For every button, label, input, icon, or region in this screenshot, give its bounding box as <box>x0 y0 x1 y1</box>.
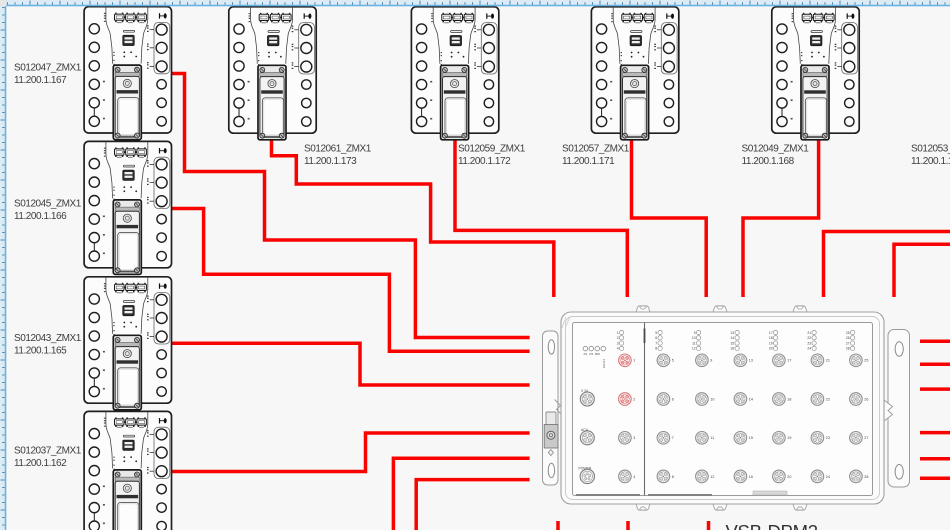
svg-text:2: 2 <box>617 336 619 340</box>
svg-text:S012045_ZMX1: S012045_ZMX1 <box>14 198 82 209</box>
svg-text:20: 20 <box>787 475 791 479</box>
svg-text:19: 19 <box>787 436 791 440</box>
svg-text:11: 11 <box>710 436 714 440</box>
svg-text:28: 28 <box>846 347 850 351</box>
svg-text:11: 11 <box>692 341 696 345</box>
svg-text:14: 14 <box>730 336 734 340</box>
svg-text:11.200.1.172: 11.200.1.172 <box>458 156 511 167</box>
svg-text:17: 17 <box>787 359 791 363</box>
svg-text:11.200.1.168: 11.200.1.168 <box>742 156 795 167</box>
svg-text:11.200.1.166: 11.200.1.166 <box>14 211 67 222</box>
svg-text:11.200.1.173: 11.200.1.173 <box>304 156 357 167</box>
svg-text:S012047_ZMX1: S012047_ZMX1 <box>14 62 82 73</box>
svg-text:17: 17 <box>769 331 773 335</box>
svg-text:24: 24 <box>807 347 811 351</box>
svg-text:P2: P2 <box>589 352 593 356</box>
svg-text:S012037_ZMX1: S012037_ZMX1 <box>14 446 82 457</box>
svg-text:11.200.1.167: 11.200.1.167 <box>14 75 67 86</box>
svg-text:27: 27 <box>846 341 850 345</box>
svg-text:10: 10 <box>710 397 714 401</box>
svg-text:FAULT: FAULT <box>602 359 606 368</box>
svg-text:28: 28 <box>864 475 868 479</box>
svg-text:6: 6 <box>672 397 674 401</box>
svg-text:S012059_ZMX1: S012059_ZMX1 <box>458 143 526 154</box>
svg-text:S012043_ZMX1: S012043_ZMX1 <box>14 333 82 344</box>
svg-text:16: 16 <box>749 475 753 479</box>
svg-text:25: 25 <box>864 359 868 363</box>
svg-text:5: 5 <box>672 359 674 363</box>
svg-text:11.200.1.169: 11.200.1.169 <box>911 156 950 167</box>
svg-text:18: 18 <box>769 336 773 340</box>
svg-text:27: 27 <box>864 436 868 440</box>
svg-text:S012057_ZMX1: S012057_ZMX1 <box>562 143 630 154</box>
svg-text:21: 21 <box>807 331 811 335</box>
svg-text:7: 7 <box>672 436 674 440</box>
svg-text:22: 22 <box>807 336 811 340</box>
svg-text:21: 21 <box>826 359 830 363</box>
svg-text:12: 12 <box>710 475 714 479</box>
svg-text:26: 26 <box>846 336 850 340</box>
svg-text:9: 9 <box>694 331 696 335</box>
svg-text:4: 4 <box>617 347 619 351</box>
svg-text:14: 14 <box>749 397 753 401</box>
svg-text:12: 12 <box>692 347 696 351</box>
svg-text:P1: P1 <box>584 352 588 356</box>
svg-text:16: 16 <box>730 347 734 351</box>
svg-text:13: 13 <box>730 331 734 335</box>
svg-text:RM: RM <box>595 352 600 356</box>
svg-text:5: 5 <box>655 331 657 335</box>
svg-text:20: 20 <box>769 347 773 351</box>
svg-text:10: 10 <box>692 336 696 340</box>
svg-text:23: 23 <box>807 341 811 345</box>
svg-text:8: 8 <box>672 475 674 479</box>
svg-text:7: 7 <box>655 341 657 345</box>
svg-text:25: 25 <box>846 331 850 335</box>
svg-text:26: 26 <box>864 397 868 401</box>
svg-text:19: 19 <box>769 341 773 345</box>
svg-text:6: 6 <box>655 336 657 340</box>
svg-text:11.200.1.171: 11.200.1.171 <box>562 156 615 167</box>
svg-text:9: 9 <box>710 359 712 363</box>
svg-text:VSB-DPM2: VSB-DPM2 <box>726 521 818 530</box>
svg-text:S012053_ZMX1: S012053_ZMX1 <box>911 143 950 154</box>
svg-text:11.200.1.162: 11.200.1.162 <box>14 458 67 469</box>
svg-text:23: 23 <box>826 436 830 440</box>
svg-text:24: 24 <box>826 475 830 479</box>
svg-text:1: 1 <box>633 359 635 363</box>
svg-text:11.200.1.165: 11.200.1.165 <box>14 346 67 357</box>
svg-text:3: 3 <box>617 341 619 345</box>
svg-text:15: 15 <box>730 341 734 345</box>
svg-text:13: 13 <box>749 359 753 363</box>
svg-text:8: 8 <box>655 347 657 351</box>
svg-text:S012061_ZMX1: S012061_ZMX1 <box>304 143 372 154</box>
svg-text:18: 18 <box>787 397 791 401</box>
svg-text:4: 4 <box>633 475 635 479</box>
svg-text:15: 15 <box>749 436 753 440</box>
svg-text:S012049_ZMX1: S012049_ZMX1 <box>742 143 810 154</box>
svg-text:1: 1 <box>617 331 619 335</box>
svg-text:2: 2 <box>633 397 635 401</box>
svg-text:3: 3 <box>633 436 635 440</box>
svg-text:22: 22 <box>826 397 830 401</box>
